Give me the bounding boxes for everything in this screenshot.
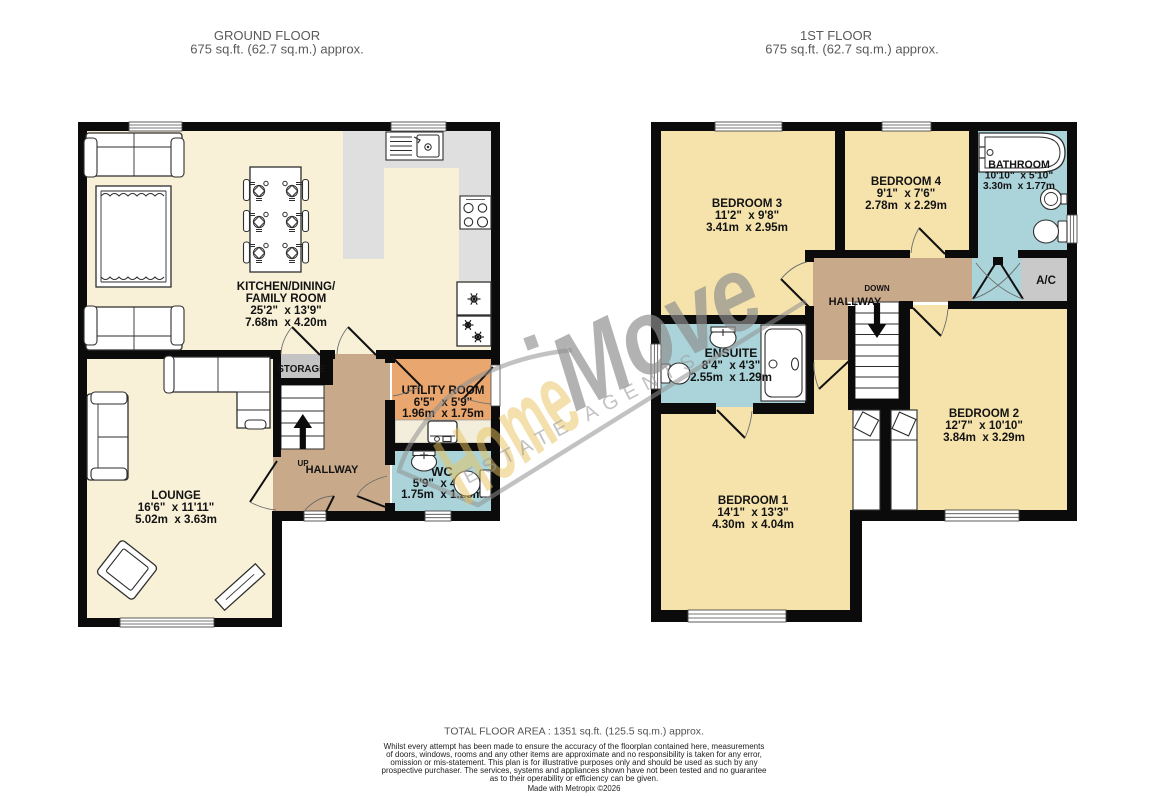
svg-text:as to their operability or eff: as to their operability or efficiency ca… [490,774,658,783]
svg-text:BATHROOM: BATHROOM [988,159,1050,171]
svg-text:HALLWAY: HALLWAY [829,296,882,308]
svg-text:2.78m x 2.29m: 2.78m x 2.29m [865,199,947,212]
svg-text:10'10" x 5'10": 10'10" x 5'10" [985,171,1053,182]
svg-text:4.30m x 4.04m: 4.30m x 4.04m [712,518,794,531]
svg-text:3.30m x 1.77m: 3.30m x 1.77m [983,181,1055,192]
svg-text:HALLWAY: HALLWAY [306,464,359,476]
svg-text:STORAGE: STORAGE [277,364,326,375]
svg-text:7.68m x 4.20m: 7.68m x 4.20m [245,316,327,329]
svg-text:A/C: A/C [1036,275,1056,287]
svg-text:TOTAL FLOOR AREA : 1351 sq.ft.: TOTAL FLOOR AREA : 1351 sq.ft. (125.5 sq… [444,727,704,738]
svg-text:675 sq.ft. (62.7 sq.m.) approx: 675 sq.ft. (62.7 sq.m.) approx. [765,42,938,57]
svg-text:3.41m x 2.95m: 3.41m x 2.95m [706,221,788,234]
svg-text:5.02m x 3.63m: 5.02m x 3.63m [135,513,217,526]
svg-text:3.84m x 3.29m: 3.84m x 3.29m [943,431,1025,444]
svg-text:675 sq.ft. (62.7 sq.m.) approx: 675 sq.ft. (62.7 sq.m.) approx. [190,42,363,57]
svg-text:Made with Metropix ©2026: Made with Metropix ©2026 [528,784,621,793]
svg-text:DOWN: DOWN [864,284,890,293]
